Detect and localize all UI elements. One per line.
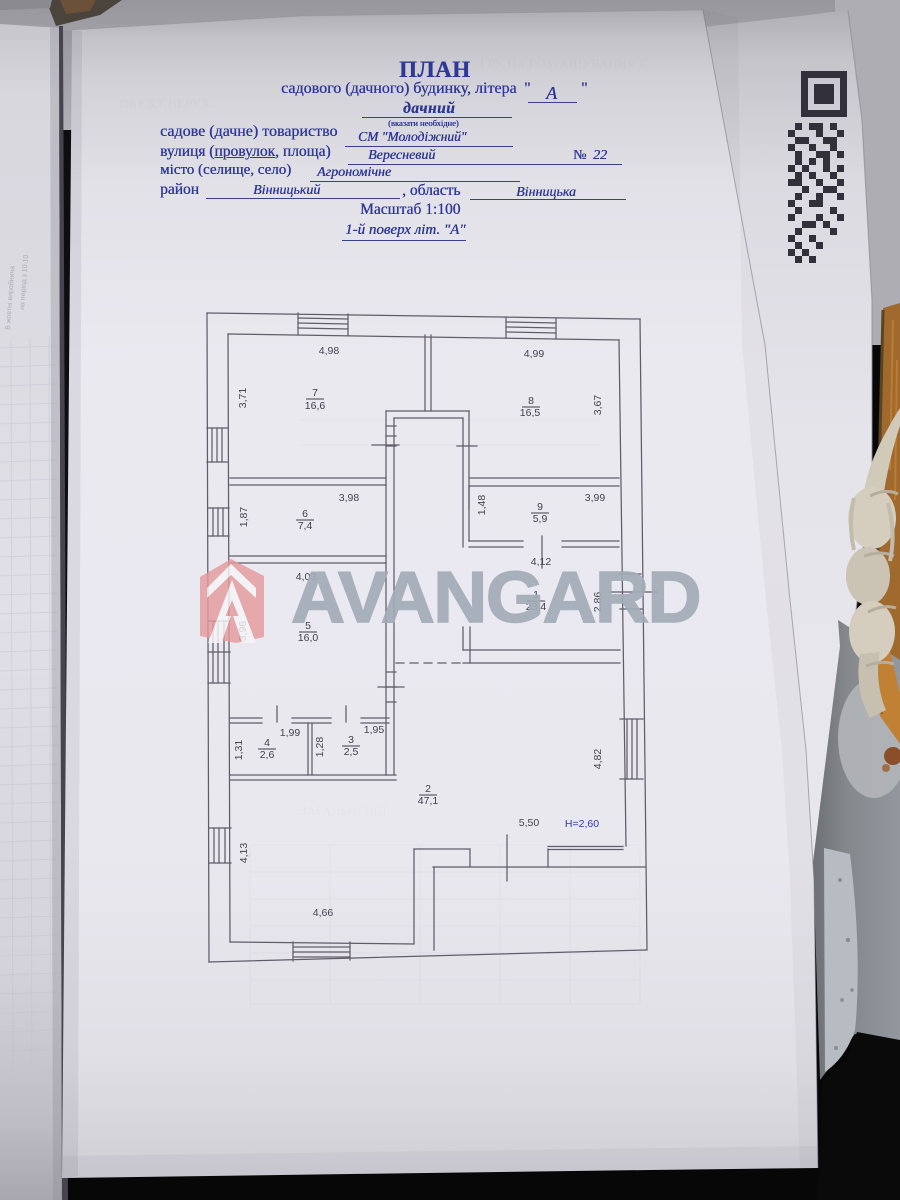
svg-text:3,99: 3,99 — [585, 492, 606, 504]
svg-text:4,99: 4,99 — [524, 348, 545, 360]
svg-text:4: 4 — [264, 737, 270, 749]
svg-text:1,28: 1,28 — [314, 737, 326, 758]
svg-text:3,67: 3,67 — [592, 395, 604, 416]
svg-text:47,1: 47,1 — [418, 795, 439, 807]
svg-text:1,31: 1,31 — [233, 740, 245, 761]
svg-text:1,95: 1,95 — [364, 724, 385, 736]
svg-text:8: 8 — [528, 395, 534, 407]
svg-text:7: 7 — [312, 387, 318, 399]
svg-text:ОБ'ЄКТ НЕРУХ: ОБ'ЄКТ НЕРУХ — [120, 96, 211, 111]
svg-text:16,5: 16,5 — [520, 407, 541, 419]
svg-text:5,50: 5,50 — [519, 817, 540, 829]
svg-text:4,82: 4,82 — [592, 749, 604, 770]
svg-text:7,4: 7,4 — [298, 520, 313, 532]
svg-text:4,13: 4,13 — [238, 843, 250, 864]
svg-text:2,5: 2,5 — [344, 746, 359, 758]
svg-text:5,9: 5,9 — [533, 513, 548, 525]
svg-text:3: 3 — [348, 734, 354, 746]
svg-text:4,98: 4,98 — [319, 345, 340, 357]
svg-text:Н=2,60: Н=2,60 — [565, 818, 599, 830]
svg-text:ГРУ НА РОЗТАШУВАННЯ Б: ГРУ НА РОЗТАШУВАННЯ Б — [480, 56, 647, 71]
svg-text:16,6: 16,6 — [305, 400, 326, 412]
svg-text:3,98: 3,98 — [339, 492, 360, 504]
svg-text:3,71: 3,71 — [237, 388, 249, 409]
svg-text:1,48: 1,48 — [476, 495, 488, 516]
svg-text:9: 9 — [537, 501, 543, 513]
svg-text:1,87: 1,87 — [238, 507, 250, 528]
svg-text:1,99: 1,99 — [280, 727, 301, 739]
svg-text:2,6: 2,6 — [260, 749, 275, 761]
svg-text:2: 2 — [425, 783, 431, 795]
svg-text:4,66: 4,66 — [313, 907, 334, 919]
svg-text:6: 6 — [302, 508, 308, 520]
